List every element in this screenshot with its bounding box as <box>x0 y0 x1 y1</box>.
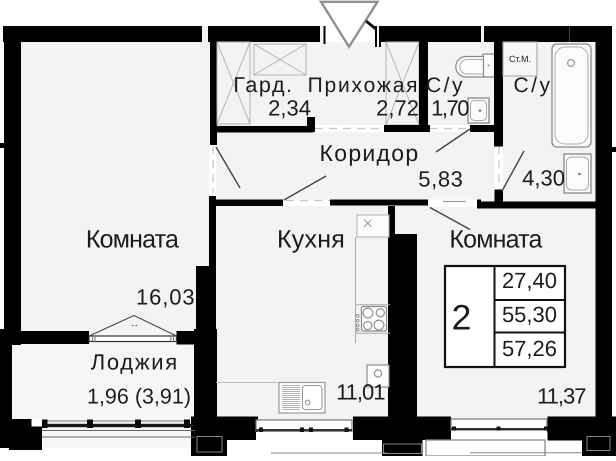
svg-text:55,30: 55,30 <box>502 302 557 327</box>
svg-text:2: 2 <box>452 298 472 338</box>
svg-text:1,96 (3,91): 1,96 (3,91) <box>87 385 191 409</box>
svg-text:4,30: 4,30 <box>522 166 565 191</box>
svg-text:2,72: 2,72 <box>376 96 419 121</box>
svg-text:57,26: 57,26 <box>502 336 557 361</box>
svg-text:Прихожая: Прихожая <box>308 74 420 97</box>
svg-text:Комната: Комната <box>86 226 179 254</box>
svg-text:Гард.: Гард. <box>233 73 293 97</box>
svg-text:С/у: С/у <box>426 74 465 97</box>
svg-text:Ст.М.: Ст.М. <box>509 54 531 64</box>
svg-text:1,70: 1,70 <box>431 96 469 121</box>
svg-text:11,01: 11,01 <box>336 380 385 405</box>
svg-text:16,03: 16,03 <box>136 285 196 310</box>
svg-text:11,37: 11,37 <box>537 384 586 409</box>
svg-text:2,34: 2,34 <box>268 96 311 121</box>
svg-text:Коридор: Коридор <box>320 140 420 166</box>
svg-text:Кухня: Кухня <box>277 226 345 254</box>
svg-text:Комната: Комната <box>449 226 542 254</box>
svg-text:27,40: 27,40 <box>502 268 557 293</box>
svg-text:Лоджия: Лоджия <box>91 350 179 375</box>
svg-text:С/у: С/у <box>514 74 553 97</box>
svg-text:5,83: 5,83 <box>418 167 463 192</box>
